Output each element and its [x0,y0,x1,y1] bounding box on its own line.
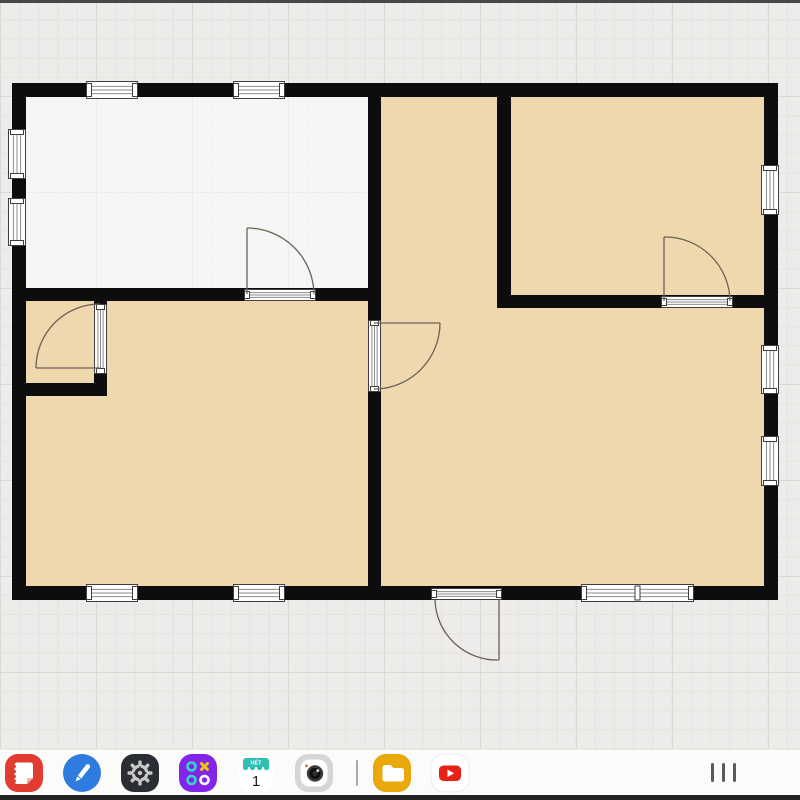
calendar-app-icon[interactable]: HÉT 1 [236,753,276,793]
wall-segment [94,373,107,396]
window-symbol[interactable] [762,437,779,486]
wall-segment [497,97,511,308]
window-symbol[interactable] [762,166,779,215]
floor-plan-canvas[interactable] [0,0,800,750]
taskbar-handle-icon[interactable] [711,763,736,782]
room-top-left[interactable] [26,97,368,288]
window-symbol[interactable] [582,585,694,602]
camera-app-icon[interactable] [294,753,334,793]
door-threshold[interactable] [432,589,502,600]
pen-notes-app-icon[interactable] [62,753,102,793]
door-threshold[interactable] [245,290,316,301]
dock-separator [356,760,358,786]
door-threshold[interactable] [95,305,107,374]
youtube-app-icon[interactable] [430,753,470,793]
notes-app-icon[interactable] [4,753,44,793]
floor-plan-drawing[interactable] [0,0,800,750]
screen-top-edge [0,0,800,3]
door-swing [435,600,499,660]
wall-segment [12,288,380,301]
game-hub-app-icon[interactable] [178,753,218,793]
window-symbol[interactable] [762,346,779,394]
door-threshold[interactable] [662,297,733,308]
window-symbol[interactable] [87,585,138,602]
svg-text:1: 1 [252,773,260,790]
window-symbol[interactable] [234,585,285,602]
door-threshold[interactable] [369,321,381,392]
window-symbol[interactable] [9,199,26,246]
wall-segment [94,288,107,305]
room-right[interactable] [381,97,764,586]
screen-bottom-edge [0,795,800,800]
folder-files-icon[interactable] [372,753,412,793]
window-symbol[interactable] [234,82,285,99]
wall-segment [12,383,107,396]
wall-segment [764,83,778,600]
window-symbol[interactable] [9,130,26,179]
settings-gear-icon[interactable] [120,753,160,793]
dock-taskbar: HÉT 1 [0,749,800,795]
window-symbol[interactable] [87,82,138,99]
room-bottom-left[interactable] [26,301,368,586]
svg-text:HÉT: HÉT [251,758,263,766]
